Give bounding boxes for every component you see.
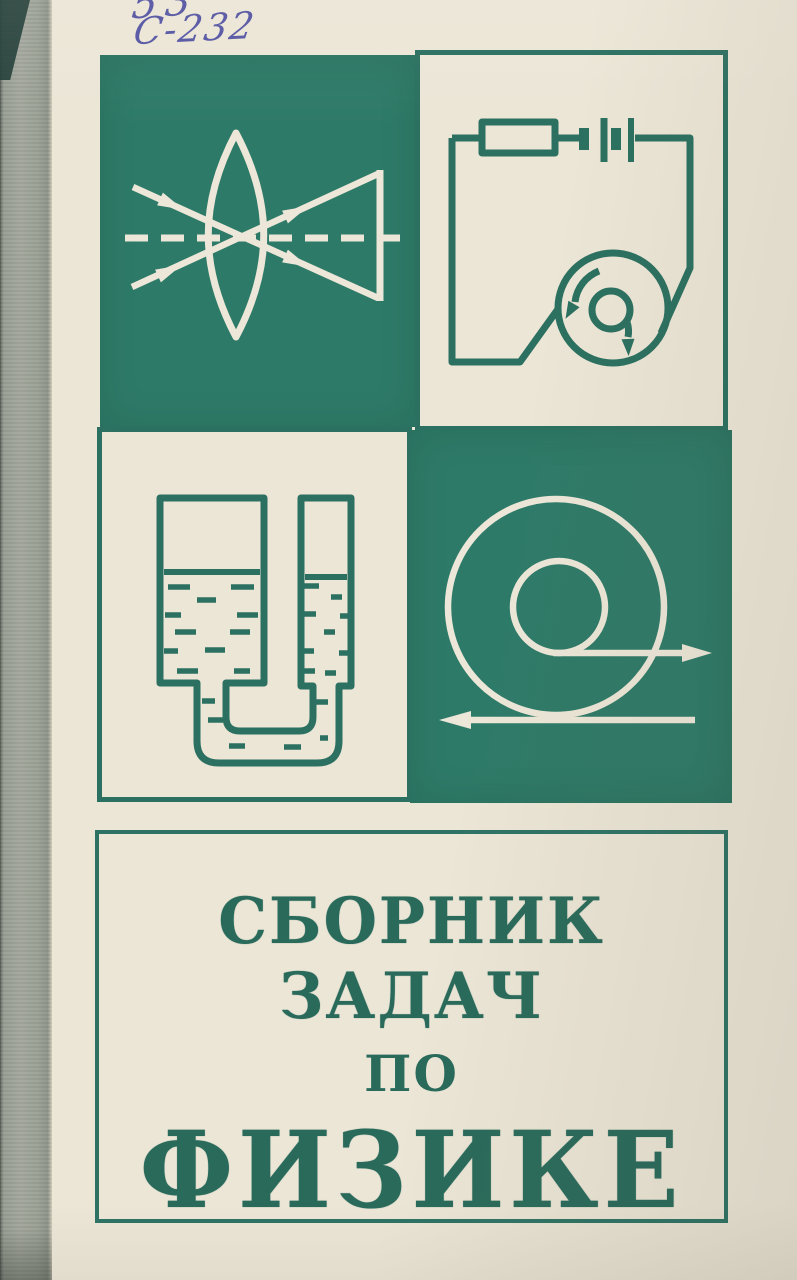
liquid-dashes — [164, 586, 349, 747]
optics-lens-panel — [100, 55, 417, 427]
electric-circuit-with-coil-icon — [420, 55, 723, 426]
charge-q-tail — [627, 322, 629, 337]
book-cover-photo: 53 С-232 — [0, 0, 797, 1280]
communicating-vessels-icon — [102, 432, 407, 797]
wheel-panel — [410, 430, 732, 803]
velocity-arrowhead-right — [682, 644, 712, 662]
wire-right-side — [635, 138, 690, 333]
rolling-wheel-velocity-arrows-icon — [410, 430, 732, 803]
spine-corner-shadow-bottom — [0, 1230, 52, 1280]
velocity-arrowhead-left — [439, 711, 471, 729]
book-title-line2: ПО — [99, 1044, 724, 1103]
book-title-line3: ФИЗИКЕ — [121, 1107, 702, 1232]
wire-left-bottom — [452, 138, 558, 362]
converging-lens-ray-diagram-icon — [100, 55, 417, 427]
library-call-number-bottom: С-232 — [131, 7, 258, 51]
wheel-inner-circle — [513, 561, 605, 653]
book-title-line1: СБОРНИК ЗАДАЧ — [112, 884, 712, 1034]
book-spine-cloth — [0, 0, 52, 1280]
circuit-panel — [415, 50, 728, 431]
rotation-arrowhead — [560, 301, 580, 322]
resistor-symbol — [482, 122, 555, 153]
charge-arrowhead — [622, 339, 636, 356]
wheel-outer-circle — [448, 499, 664, 715]
battery-symbol — [584, 118, 631, 162]
title-box: СБОРНИК ЗАДАЧ ПО ФИЗИКЕ — [95, 830, 728, 1223]
vessels-panel — [97, 427, 412, 802]
